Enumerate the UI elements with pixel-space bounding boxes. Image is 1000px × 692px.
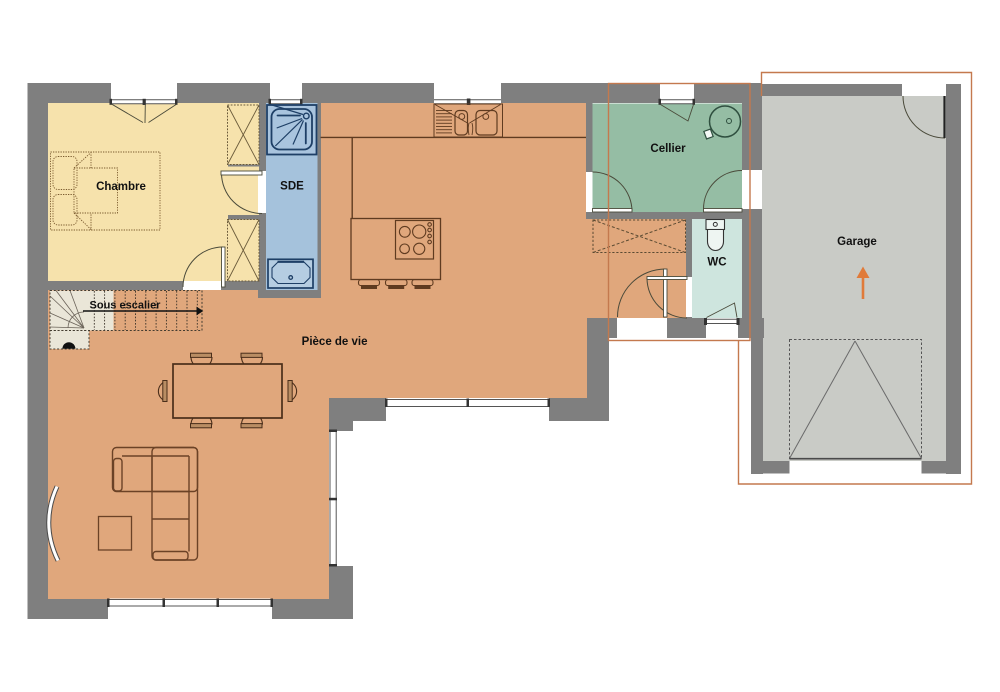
svg-text:Garage: Garage [837, 236, 877, 248]
svg-text:Sous escalier: Sous escalier [90, 299, 162, 311]
svg-text:SDE: SDE [280, 180, 304, 192]
svg-text:Pièce de vie: Pièce de vie [302, 336, 368, 348]
svg-text:WC: WC [707, 257, 726, 269]
svg-text:Chambre: Chambre [96, 181, 146, 193]
svg-text:Cellier: Cellier [650, 143, 686, 155]
